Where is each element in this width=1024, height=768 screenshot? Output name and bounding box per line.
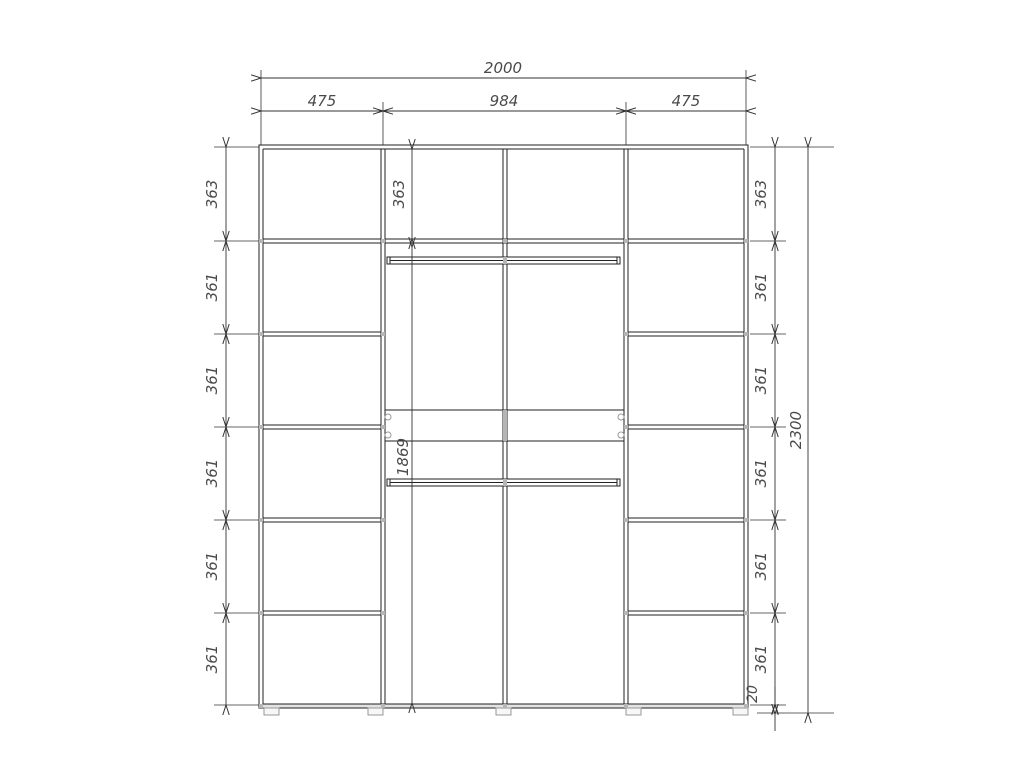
dimension-lines: [226, 78, 808, 731]
dim-right-compartment-1: 363: [752, 180, 770, 209]
dim-overall-width: 2000: [484, 59, 522, 77]
dim-left-compartment-2: 361: [203, 273, 221, 302]
cam-hole: [385, 414, 391, 420]
dim-right-section-width: 475: [672, 92, 701, 110]
dim-right-compartment-6: 361: [752, 645, 770, 674]
cam-hole: [618, 414, 624, 420]
cam-hole: [385, 432, 391, 438]
dim-right-compartment-2: 361: [752, 273, 770, 302]
feet: [264, 708, 748, 715]
foot: [496, 708, 511, 715]
wardrobe-dimension-drawing: 2000 475 984 475 363 361 361 361 361 361…: [0, 0, 1024, 768]
dim-plinth-height: 20: [745, 685, 761, 703]
dim-right-compartment-4: 361: [752, 459, 770, 488]
dim-left-compartment-3: 361: [203, 366, 221, 395]
foot: [264, 708, 279, 715]
dim-left-compartment-4: 361: [203, 459, 221, 488]
dim-left-compartment-6: 361: [203, 645, 221, 674]
foot: [626, 708, 641, 715]
dim-right-compartment-5: 361: [752, 552, 770, 581]
drawing-canvas: 2000 475 984 475 363 361 361 361 361 361…: [0, 0, 1024, 768]
dim-left-compartment-1: 363: [203, 180, 221, 209]
dim-middle-top-compartment: 363: [390, 180, 408, 209]
dim-right-compartment-3: 361: [752, 366, 770, 395]
extension-lines: [214, 70, 834, 713]
left-column-shelves: [263, 239, 381, 615]
dim-total-height: 2300: [787, 411, 805, 449]
dim-middle-section-width: 984: [490, 92, 519, 110]
dimension-labels: 2000 475 984 475 363 361 361 361 361 361…: [203, 59, 805, 703]
dim-left-compartment-5: 361: [203, 552, 221, 581]
foot: [733, 708, 748, 715]
foot: [368, 708, 383, 715]
cam-hole: [618, 432, 624, 438]
dim-left-section-width: 475: [308, 92, 337, 110]
dim-middle-interior-height: 1869: [394, 438, 412, 476]
right-column-shelves: [628, 239, 744, 615]
